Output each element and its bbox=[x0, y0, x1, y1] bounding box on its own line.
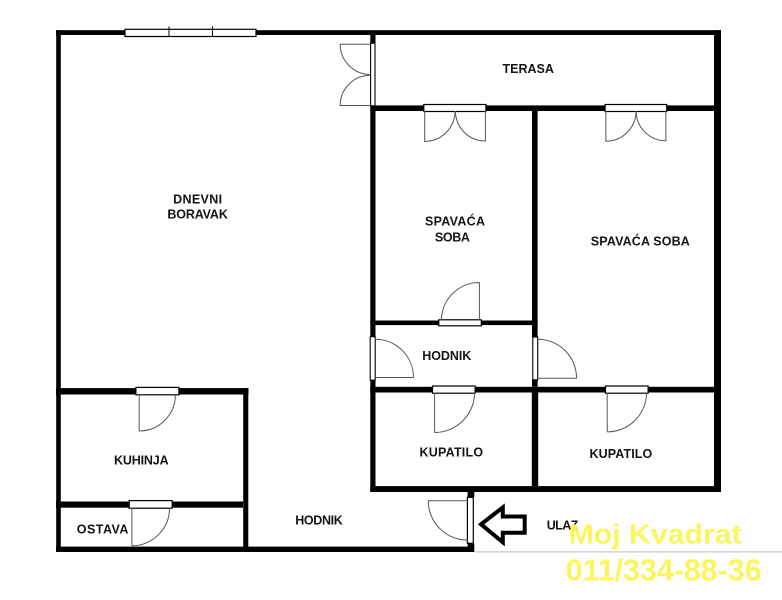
svg-text:HODNIK: HODNIK bbox=[422, 349, 471, 363]
svg-text:SOBA: SOBA bbox=[435, 230, 470, 244]
svg-text:KUPATILO: KUPATILO bbox=[419, 446, 483, 460]
svg-text:SPAVAĆA SOBA: SPAVAĆA SOBA bbox=[591, 234, 690, 249]
svg-text:HODNIK: HODNIK bbox=[295, 513, 343, 527]
svg-text:TERASA: TERASA bbox=[502, 62, 554, 76]
svg-text:DNEVNI: DNEVNI bbox=[173, 192, 222, 206]
svg-text:SPAVAĆA: SPAVAĆA bbox=[425, 213, 485, 228]
svg-text:011/334-88-36: 011/334-88-36 bbox=[566, 552, 762, 587]
svg-text:BORAVAK: BORAVAK bbox=[167, 208, 228, 222]
svg-text:Moj Kvadrat: Moj Kvadrat bbox=[569, 518, 742, 549]
svg-text:OSTAVA: OSTAVA bbox=[77, 522, 129, 536]
svg-text:KUHINJA: KUHINJA bbox=[114, 453, 169, 467]
svg-text:KUPATILO: KUPATILO bbox=[590, 447, 653, 461]
